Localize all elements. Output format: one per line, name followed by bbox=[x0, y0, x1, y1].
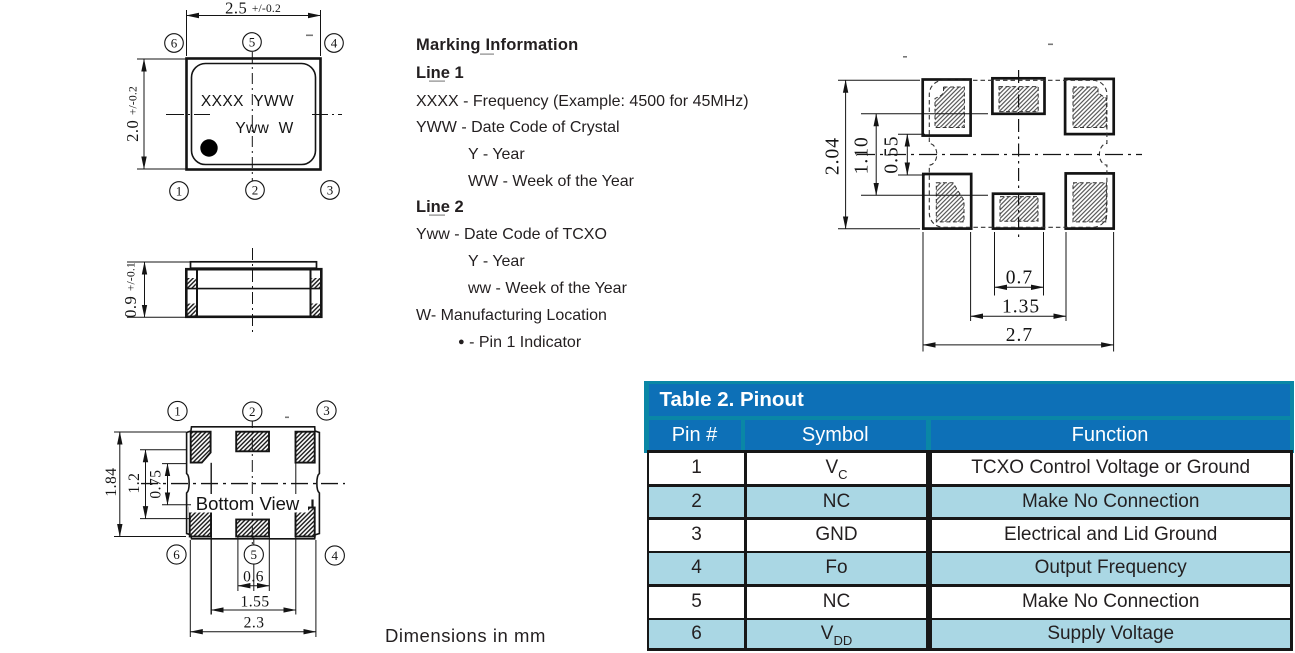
svg-text:0.75: 0.75 bbox=[148, 469, 165, 498]
svg-text:Yww W: Yww W bbox=[235, 120, 293, 137]
svg-text:3: 3 bbox=[323, 403, 330, 418]
svg-text:2.7: 2.7 bbox=[1006, 325, 1033, 346]
svg-text:3: 3 bbox=[327, 183, 334, 198]
svg-text:2.3: 2.3 bbox=[244, 615, 265, 632]
svg-text:4: 4 bbox=[332, 548, 339, 563]
svg-text:2.5 +/-0.2: 2.5 +/-0.2 bbox=[225, 0, 281, 18]
svg-text:6: 6 bbox=[171, 36, 178, 51]
svg-text:0.9 +/-0.1: 0.9 +/-0.1 bbox=[121, 262, 140, 318]
svg-text:1: 1 bbox=[176, 184, 183, 199]
svg-text:XXXX YWW: XXXX YWW bbox=[201, 93, 294, 110]
svg-text:0.55: 0.55 bbox=[882, 136, 903, 174]
svg-text:1.35: 1.35 bbox=[1002, 297, 1040, 318]
svg-text:5: 5 bbox=[249, 35, 256, 50]
svg-text:1.84: 1.84 bbox=[103, 467, 120, 496]
svg-text:1.10: 1.10 bbox=[852, 136, 873, 174]
svg-text:1.2: 1.2 bbox=[126, 473, 143, 494]
svg-text:2: 2 bbox=[249, 404, 256, 419]
svg-text:1.55: 1.55 bbox=[240, 594, 269, 611]
svg-text:2.04: 2.04 bbox=[823, 137, 844, 175]
svg-text:2: 2 bbox=[252, 183, 259, 198]
svg-text:1: 1 bbox=[174, 404, 181, 419]
svg-text:6: 6 bbox=[173, 547, 180, 562]
svg-text:5: 5 bbox=[251, 547, 258, 562]
svg-text:0.7: 0.7 bbox=[1006, 268, 1033, 289]
svg-text:0.6: 0.6 bbox=[243, 569, 264, 586]
svg-text:2.0 +/-0.2: 2.0 +/-0.2 bbox=[123, 86, 142, 142]
svg-text:Bottom View: Bottom View bbox=[196, 493, 300, 514]
svg-text:4: 4 bbox=[331, 36, 338, 51]
